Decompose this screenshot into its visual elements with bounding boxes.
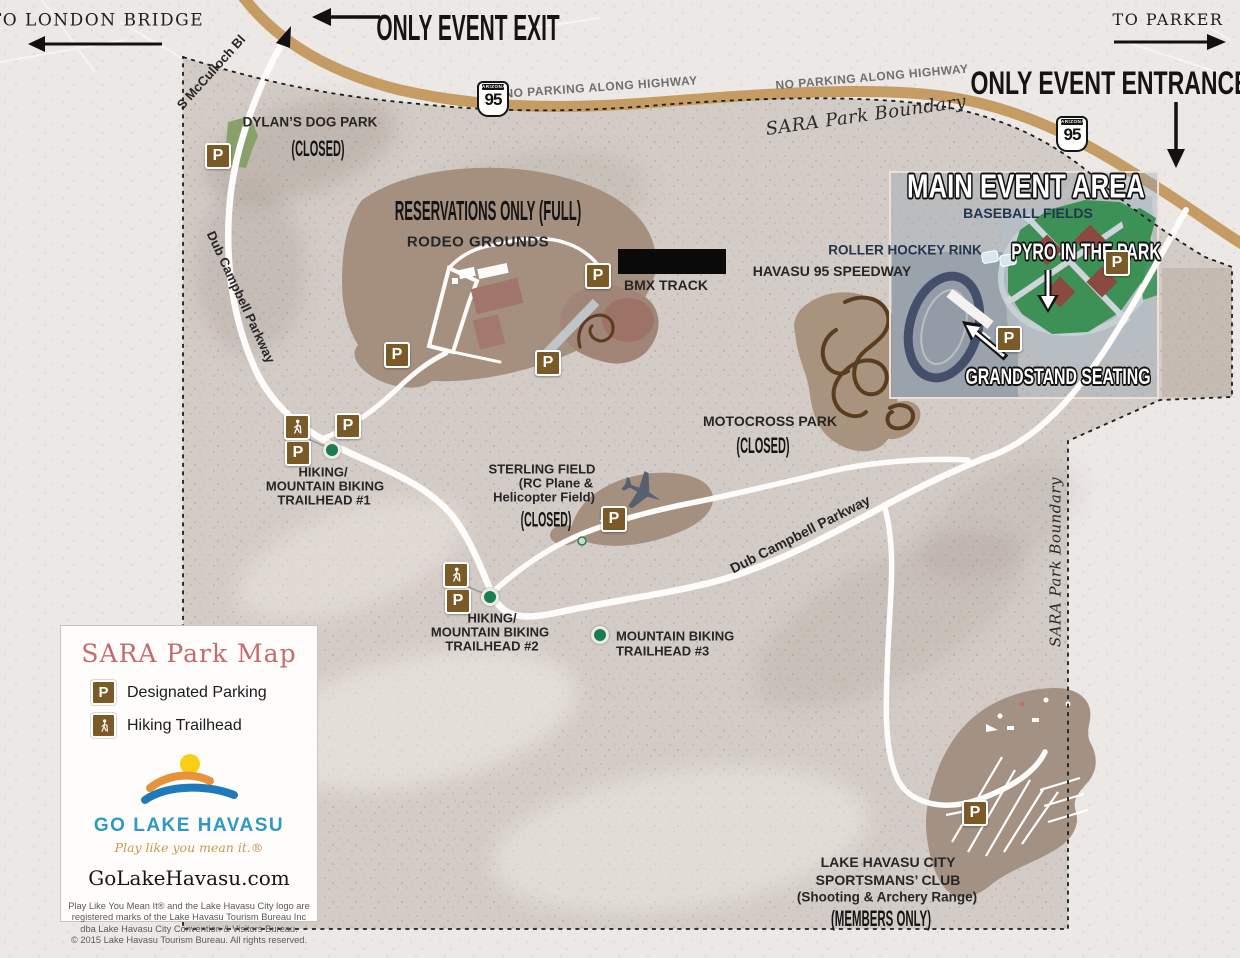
legend-item-trailhead: Hiking Trailhead — [91, 713, 317, 738]
trailhead-marker-dot — [591, 626, 609, 644]
dog-park-label: DYLAN’S DOG PARK — [243, 115, 378, 129]
logo-tagline: Play like you mean it.® — [61, 840, 317, 855]
parking-icon: P — [285, 440, 311, 466]
sterling-field-label: STERLING FIELD — [489, 463, 596, 476]
parking-icon: P — [91, 680, 116, 705]
parking-icon: P — [601, 506, 627, 532]
website-text: GoLakeHavasu.com — [61, 866, 317, 890]
parking-icon: P — [1104, 250, 1130, 276]
grandstand-seating-label: GRANDSTAND SEATING — [965, 366, 1150, 388]
logo-wordmark: GO LAKE HAVASU — [61, 815, 317, 837]
baseball-fields-label: BASEBALL FIELDS — [963, 206, 1093, 220]
sterling-sub2: Helicopter Field) — [493, 491, 595, 504]
range-flag — [1020, 702, 1024, 706]
route-95-shield-icon: ARIZONA95 — [477, 81, 509, 117]
trailhead2-line2: MOUNTAIN BIKING — [431, 626, 549, 639]
trailhead-marker-dot — [323, 441, 341, 459]
parking-icon: P — [445, 588, 471, 614]
legend-title: SARA Park Map — [61, 639, 317, 668]
parking-icon: P — [205, 143, 231, 169]
go-lake-havasu-logo-icon — [134, 754, 244, 806]
parking-icon: P — [996, 326, 1022, 352]
sportsmans-line3: (Shooting & Archery Range) — [797, 890, 977, 904]
route-95-shield-icon: ARIZONA95 — [1056, 116, 1088, 152]
legend-parking-label: Designated Parking — [127, 684, 267, 702]
sportsmans-status: (MEMBERS ONLY) — [831, 908, 931, 930]
sterling-sub1: (RC Plane & — [519, 477, 593, 490]
parking-icon: P — [335, 413, 361, 439]
park-boundary-label-right: SARA Park Boundary — [1049, 477, 1064, 647]
sportsmans-line2: SPORTSMANS’ CLUB — [816, 873, 961, 887]
hiking-trailhead-icon — [91, 713, 116, 738]
parking-icon: P — [585, 263, 611, 289]
trailhead-marker-dot — [481, 588, 499, 606]
trailhead3-line1: MOUNTAIN BIKING — [616, 630, 734, 643]
only-event-exit-label: ONLY EVENT EXIT — [376, 10, 559, 46]
bmx-track-label: BMX TRACK — [624, 278, 708, 292]
pyro-in-the-park-label: PYRO IN THE PARK — [1011, 241, 1161, 264]
to-parker-label: TO PARKER — [1113, 12, 1224, 28]
trailhead1-line2: MOUNTAIN BIKING — [266, 480, 384, 493]
trailhead3-line2: TRAILHEAD #3 — [616, 645, 709, 658]
roller-hockey-label: ROLLER HOCKEY RINK — [828, 243, 982, 257]
parking-icon: P — [384, 342, 410, 368]
legend-box: SARA Park Map P Designated Parking Hikin… — [60, 625, 318, 922]
parking-icon: P — [535, 350, 561, 376]
parking-icon: P — [962, 800, 988, 826]
main-event-area-title: MAIN EVENT AREA — [907, 170, 1145, 203]
sterling-pond — [578, 537, 586, 545]
sterling-status: (CLOSED) — [521, 510, 572, 531]
trailhead2-line3: TRAILHEAD #2 — [445, 640, 538, 653]
legal-fine-print: Play Like You Mean It® and the Lake Hava… — [61, 901, 317, 947]
terrain-patch — [1162, 268, 1232, 397]
rodeo-note: RESERVATIONS ONLY (FULL) — [395, 197, 581, 225]
sportsmans-line1: LAKE HAVASU CITY — [821, 855, 956, 869]
motocross-label: MOTOCROSS PARK — [703, 414, 837, 428]
bmx-label-bar — [618, 249, 726, 274]
speedway-label: HAVASU 95 SPEEDWAY — [753, 264, 911, 278]
rodeo-grounds-label: RODEO GROUNDS — [407, 235, 549, 250]
sara-park-map: TO LONDON BRIDGE ONLY EVENT EXIT TO PARK… — [0, 0, 1240, 958]
hiking-trailhead-icon — [284, 414, 310, 440]
to-london-bridge-label: TO LONDON BRIDGE — [0, 13, 204, 30]
hiking-trailhead-icon — [443, 562, 469, 588]
trailhead1-line3: TRAILHEAD #1 — [277, 494, 370, 507]
legend-trailhead-label: Hiking Trailhead — [127, 717, 242, 735]
trailhead2-line1: HIKING/ — [467, 612, 516, 625]
motocross-status: (CLOSED) — [736, 435, 789, 457]
dog-park-status: (CLOSED) — [291, 138, 344, 160]
trailhead1-line1: HIKING/ — [298, 466, 347, 479]
only-event-entrance-label: ONLY EVENT ENTRANCE — [970, 67, 1240, 99]
legend-item-parking: P Designated Parking — [91, 680, 317, 705]
